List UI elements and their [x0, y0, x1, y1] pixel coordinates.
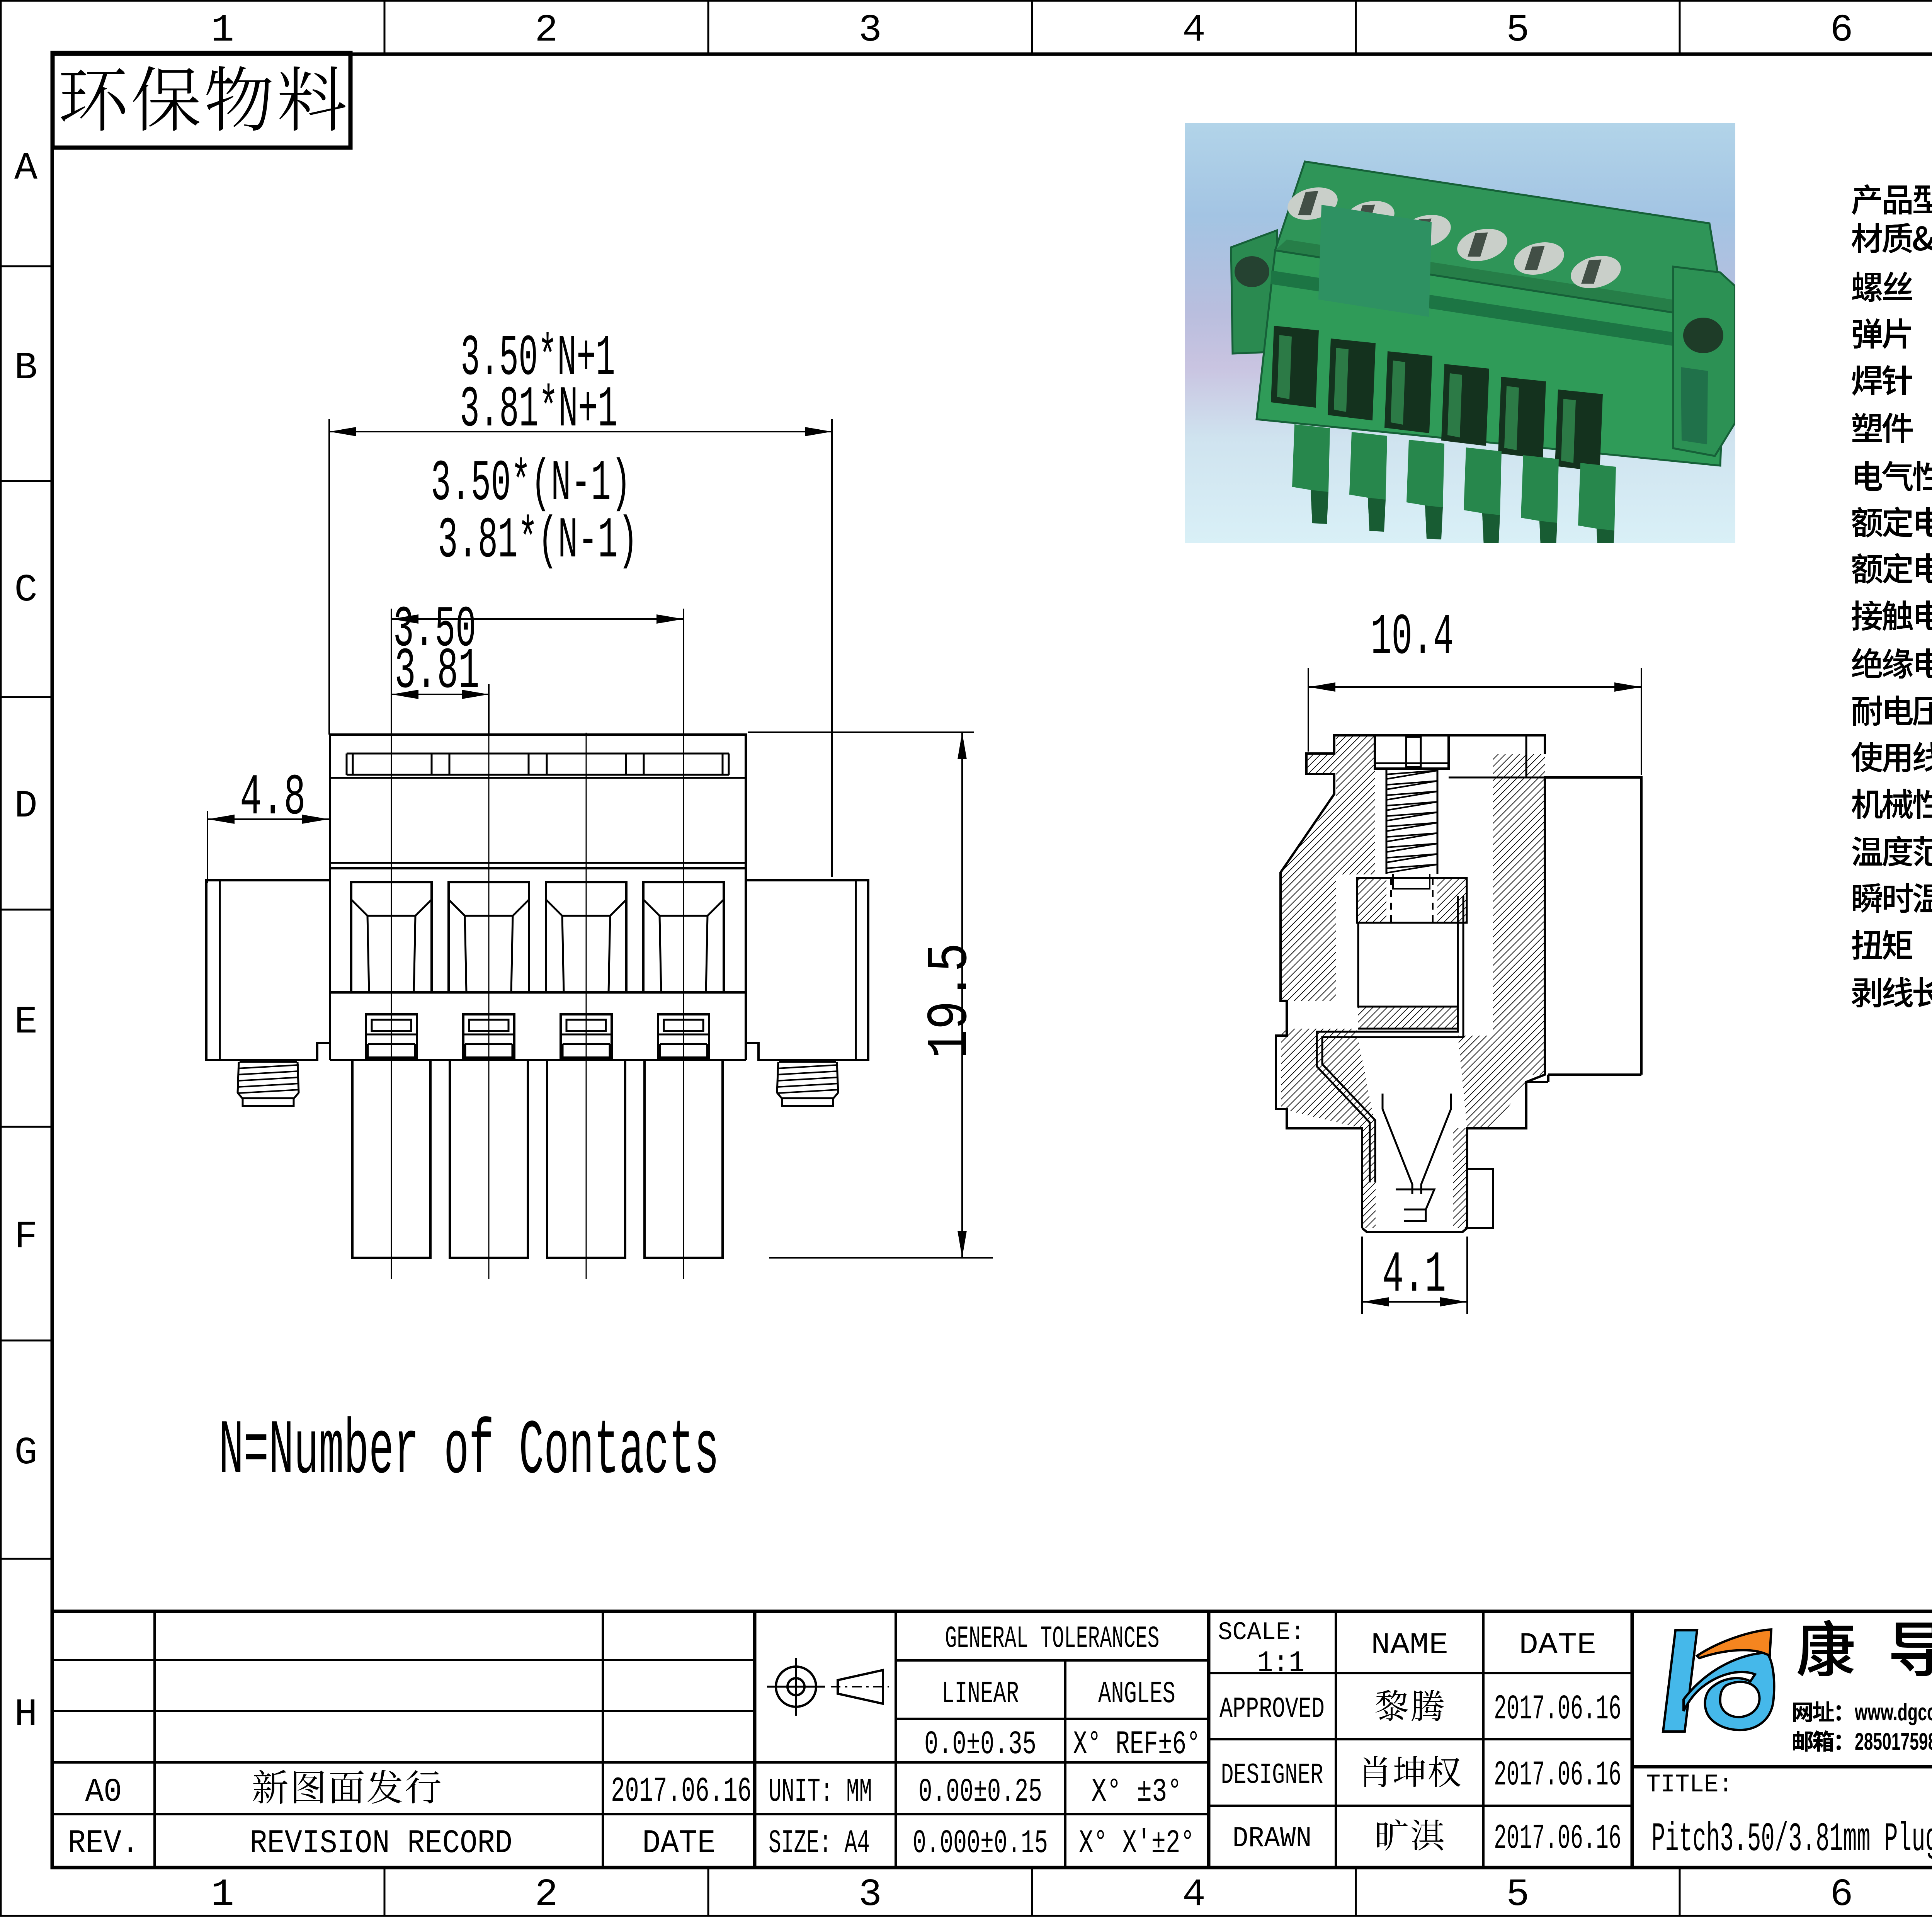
svg-text:Pitch3.50/3.81mm Pluggable Ter: Pitch3.50/3.81mm Pluggable Terminal Bloc… — [1651, 1817, 1932, 1863]
svg-text:2017.06.16: 2017.06.16 — [1494, 1819, 1621, 1859]
svg-text:5: 5 — [1506, 1873, 1529, 1917]
svg-text:3.81*N+1: 3.81*N+1 — [460, 378, 617, 443]
svg-text:3: 3 — [859, 9, 882, 53]
svg-text:N=Number of Contacts: N=Number of Contacts — [219, 1408, 719, 1496]
svg-text:APPROVED: APPROVED — [1219, 1693, 1325, 1726]
svg-text:1: 1 — [211, 9, 234, 53]
svg-text:5: 5 — [1506, 9, 1529, 53]
svg-text:DATE: DATE — [1519, 1628, 1596, 1662]
svg-text:X° X'±2°: X° X'±2° — [1079, 1825, 1195, 1862]
svg-text:3.50*(N-1): 3.50*(N-1) — [431, 451, 631, 517]
svg-text:D: D — [14, 785, 37, 828]
svg-text:SIZE: A4: SIZE: A4 — [769, 1825, 870, 1862]
svg-text:4: 4 — [1182, 9, 1206, 53]
svg-text:X° ±3°: X° ±3° — [1092, 1773, 1182, 1811]
svg-text:DRAWN: DRAWN — [1233, 1822, 1312, 1855]
svg-text:0.0±0.35: 0.0±0.35 — [924, 1726, 1036, 1763]
svg-text:F: F — [14, 1216, 37, 1259]
svg-text:X° REF±6°: X° REF±6° — [1073, 1726, 1201, 1763]
svg-text:3: 3 — [859, 1873, 882, 1917]
svg-text:2850175986@qq.com: 2850175986@qq.com — [1855, 1728, 1932, 1755]
svg-text:2: 2 — [535, 9, 558, 53]
svg-text:C: C — [14, 569, 37, 612]
svg-text:10.4: 10.4 — [1371, 605, 1454, 671]
svg-text:TITLE:: TITLE: — [1646, 1770, 1733, 1799]
svg-text:H: H — [14, 1693, 37, 1737]
svg-text:A0: A0 — [85, 1773, 122, 1811]
svg-text:NAME: NAME — [1371, 1628, 1448, 1662]
svg-text:1:1: 1:1 — [1257, 1647, 1304, 1681]
svg-text:4: 4 — [1182, 1873, 1206, 1917]
svg-text:REVISION RECORD: REVISION RECORD — [250, 1825, 512, 1862]
svg-text:2017.06.16: 2017.06.16 — [1494, 1756, 1621, 1795]
svg-text:DATE: DATE — [642, 1825, 716, 1862]
svg-text:2: 2 — [535, 1873, 558, 1917]
svg-text:A: A — [14, 147, 37, 191]
svg-text:2017.06.16: 2017.06.16 — [611, 1772, 752, 1812]
svg-text:DESIGNER: DESIGNER — [1221, 1759, 1323, 1792]
svg-text:1: 1 — [211, 1873, 234, 1917]
svg-text:0.000±0.15: 0.000±0.15 — [913, 1825, 1048, 1862]
svg-text:4.1: 4.1 — [1383, 1243, 1446, 1308]
svg-text:2017.06.16: 2017.06.16 — [1494, 1690, 1621, 1729]
svg-text:6: 6 — [1830, 1873, 1853, 1917]
svg-text:REV.: REV. — [68, 1825, 139, 1862]
svg-text:www.dgconne.com: www.dgconne.com — [1854, 1699, 1932, 1726]
svg-text:0.00±0.25: 0.00±0.25 — [918, 1773, 1042, 1811]
svg-text:G: G — [14, 1432, 37, 1475]
svg-text:6: 6 — [1830, 9, 1853, 53]
svg-text:E: E — [14, 1001, 37, 1044]
svg-text:3.81*(N-1): 3.81*(N-1) — [438, 509, 638, 574]
svg-text:UNIT: MM: UNIT: MM — [769, 1773, 872, 1811]
svg-text:19.5: 19.5 — [918, 943, 984, 1059]
svg-text:4.8: 4.8 — [240, 765, 306, 831]
svg-text:SCALE:: SCALE: — [1218, 1618, 1305, 1647]
svg-text:LINEAR: LINEAR — [942, 1677, 1019, 1712]
svg-text:GENERAL TOLERANCES: GENERAL TOLERANCES — [945, 1621, 1160, 1657]
svg-text:ANGLES: ANGLES — [1098, 1677, 1175, 1712]
svg-text:B: B — [14, 347, 37, 390]
